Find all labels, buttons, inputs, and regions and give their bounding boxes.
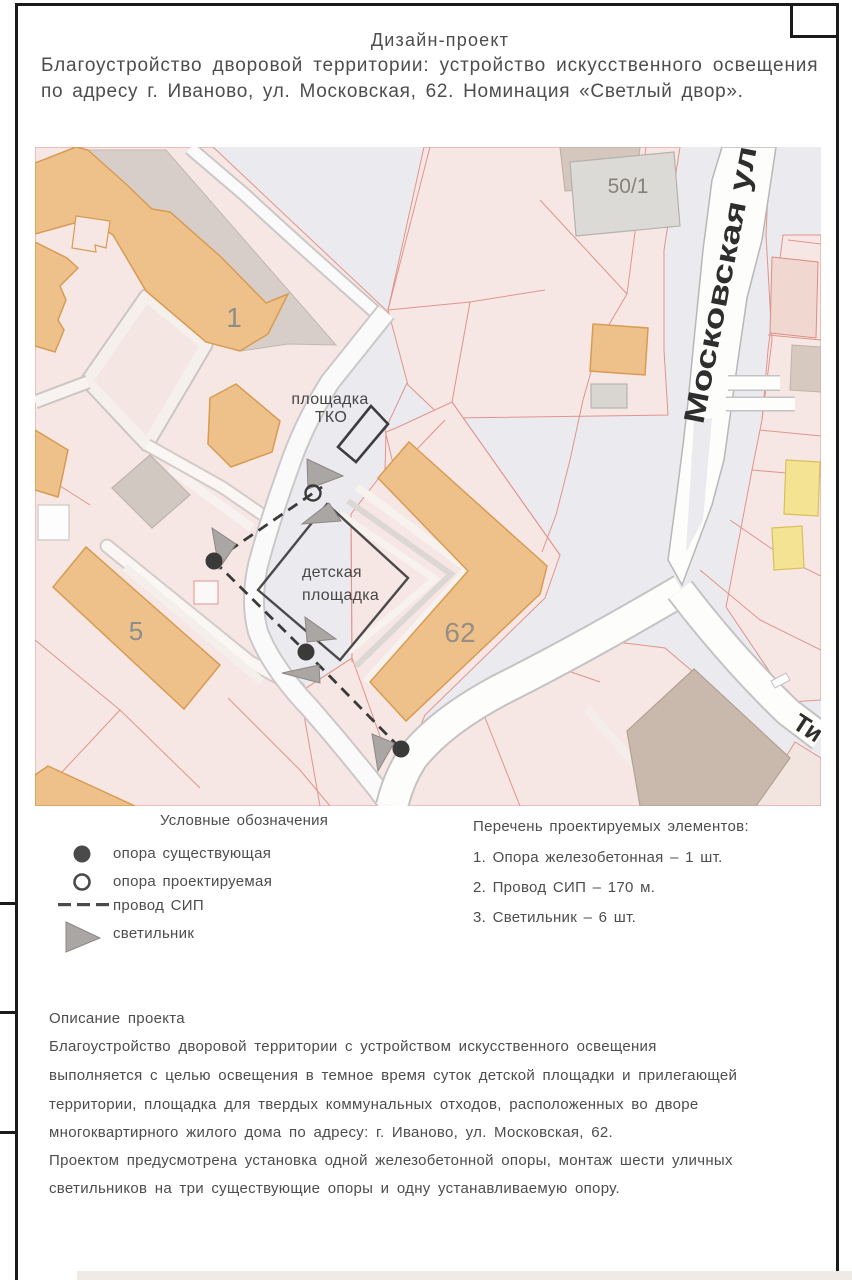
svg-text:62: 62 [444, 617, 475, 648]
svg-text:ТКО: ТКО [315, 409, 347, 426]
svg-text:площадка: площадка [291, 391, 368, 408]
svg-text:детская: детская [302, 564, 362, 581]
svg-text:50/1: 50/1 [608, 175, 649, 198]
svg-text:5: 5 [129, 616, 143, 646]
svg-text:площадка: площадка [302, 587, 379, 604]
svg-text:1: 1 [226, 302, 242, 333]
